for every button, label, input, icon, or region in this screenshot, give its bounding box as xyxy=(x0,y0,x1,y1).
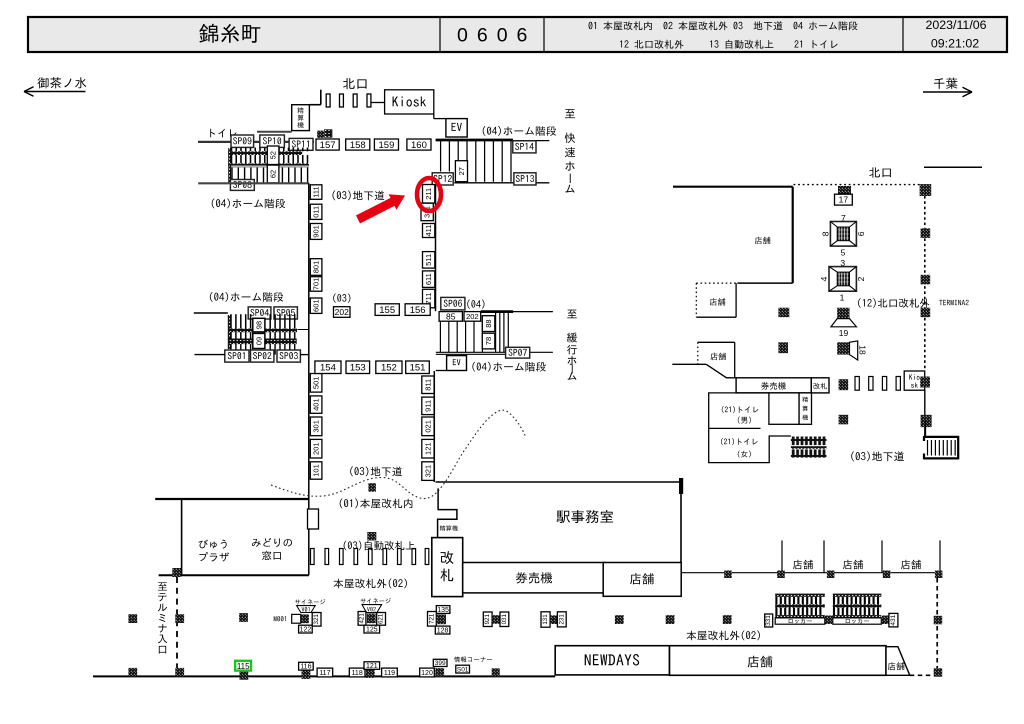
svg-text:321: 321 xyxy=(313,614,320,625)
svg-text:031: 031 xyxy=(501,614,508,625)
svg-text:121: 121 xyxy=(366,663,378,670)
svg-text:125: 125 xyxy=(366,627,378,634)
svg-text:301: 301 xyxy=(312,420,321,433)
svg-text:399: 399 xyxy=(435,660,446,667)
svg-text:621: 621 xyxy=(378,613,385,624)
svg-text:421: 421 xyxy=(359,613,366,624)
svg-text:601: 601 xyxy=(312,299,321,312)
svg-text:701: 701 xyxy=(312,278,321,291)
svg-text:111: 111 xyxy=(312,186,321,197)
svg-text:153: 153 xyxy=(350,363,366,374)
svg-text:119: 119 xyxy=(384,670,395,677)
svg-text:201: 201 xyxy=(312,442,321,455)
svg-text:09: 09 xyxy=(254,337,263,345)
svg-text:98: 98 xyxy=(254,321,263,329)
svg-text:19: 19 xyxy=(839,328,849,338)
svg-text:156: 156 xyxy=(410,305,426,316)
svg-text:158: 158 xyxy=(350,140,366,151)
svg-text:5: 5 xyxy=(841,248,846,258)
svg-text:101: 101 xyxy=(312,464,321,477)
svg-text:011: 011 xyxy=(312,206,321,218)
svg-text:78: 78 xyxy=(484,337,493,345)
svg-text:88: 88 xyxy=(484,319,493,327)
svg-text:811: 811 xyxy=(423,379,432,391)
svg-text:52: 52 xyxy=(269,151,278,159)
svg-text:611: 611 xyxy=(424,273,433,285)
svg-text:120: 120 xyxy=(421,670,433,677)
svg-text:160: 160 xyxy=(411,140,427,151)
svg-text:152: 152 xyxy=(381,363,397,374)
svg-text:154: 154 xyxy=(320,363,336,374)
svg-text:711: 711 xyxy=(424,293,433,305)
svg-text:3: 3 xyxy=(840,258,845,268)
svg-text:202: 202 xyxy=(466,312,479,321)
svg-text:921: 921 xyxy=(484,614,491,625)
svg-text:1: 1 xyxy=(840,293,845,303)
svg-text:115: 115 xyxy=(237,662,250,671)
svg-text:09:21:02: 09:21:02 xyxy=(931,36,979,50)
svg-text:S01: S01 xyxy=(457,666,469,673)
svg-text:157: 157 xyxy=(320,140,336,151)
svg-text:721: 721 xyxy=(428,613,435,624)
svg-text:211: 211 xyxy=(424,188,433,200)
svg-text:911: 911 xyxy=(423,400,432,412)
svg-text:202: 202 xyxy=(335,307,349,317)
svg-text:128: 128 xyxy=(437,628,449,635)
svg-text:4: 4 xyxy=(819,276,829,281)
svg-text:27: 27 xyxy=(457,167,466,175)
svg-text:135: 135 xyxy=(437,607,449,614)
svg-text:901: 901 xyxy=(312,225,321,238)
svg-text:2023/11/06: 2023/11/06 xyxy=(925,18,986,32)
svg-text:2: 2 xyxy=(856,276,866,281)
svg-text:155: 155 xyxy=(379,305,395,316)
svg-text:401: 401 xyxy=(312,398,321,411)
svg-text:62: 62 xyxy=(269,170,278,178)
svg-text:159: 159 xyxy=(379,140,395,151)
svg-text:321: 321 xyxy=(423,465,432,478)
svg-text:801: 801 xyxy=(312,261,321,274)
svg-text:431: 431 xyxy=(890,614,897,625)
svg-text:121: 121 xyxy=(423,442,432,455)
svg-text:8: 8 xyxy=(821,231,831,236)
svg-text:0606: 0606 xyxy=(457,25,536,47)
svg-text:18: 18 xyxy=(858,345,868,355)
svg-text:117: 117 xyxy=(319,670,330,677)
svg-text:151: 151 xyxy=(410,363,426,374)
svg-text:511: 511 xyxy=(424,254,433,266)
svg-text:17: 17 xyxy=(839,195,849,205)
svg-text:501: 501 xyxy=(312,377,321,390)
svg-text:021: 021 xyxy=(423,420,432,433)
svg-text:85: 85 xyxy=(446,311,456,321)
svg-text:122: 122 xyxy=(300,627,312,634)
svg-text:131: 131 xyxy=(542,614,549,625)
svg-text:116: 116 xyxy=(300,664,311,671)
svg-text:6: 6 xyxy=(856,231,866,236)
svg-text:118: 118 xyxy=(352,670,363,677)
svg-text:411: 411 xyxy=(424,225,433,237)
svg-text:7: 7 xyxy=(841,213,846,223)
svg-text:231: 231 xyxy=(558,614,565,625)
svg-text:331: 331 xyxy=(765,615,772,626)
